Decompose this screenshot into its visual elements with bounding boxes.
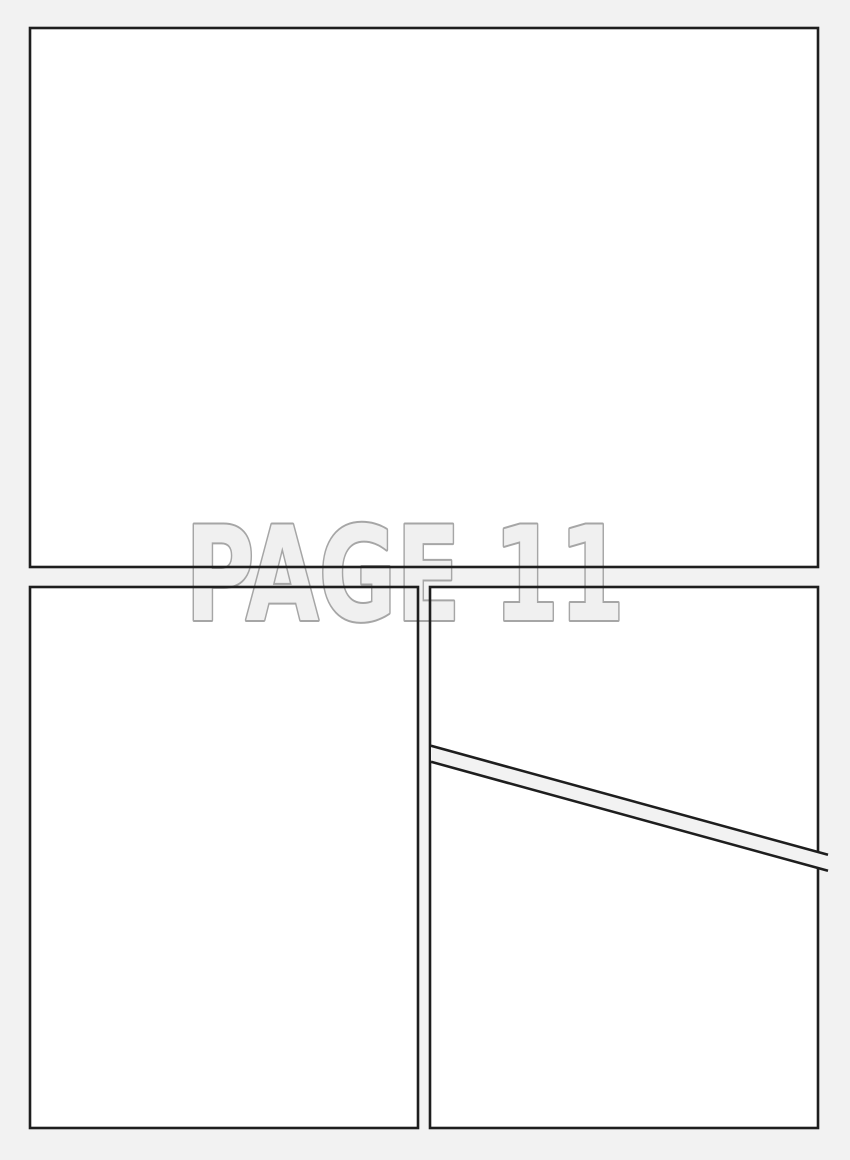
page-number-watermark: PAGE 11 [185, 498, 624, 651]
comic-page-template: PAGE 11 [0, 0, 850, 1160]
panel-right-column-fill [430, 587, 818, 1128]
panel-top-fill [30, 28, 818, 567]
panel-bottom-left-fill [30, 587, 418, 1128]
comic-page-canvas: PAGE 11 [0, 0, 850, 1160]
page-number-watermark-group: PAGE 11 [185, 498, 624, 651]
